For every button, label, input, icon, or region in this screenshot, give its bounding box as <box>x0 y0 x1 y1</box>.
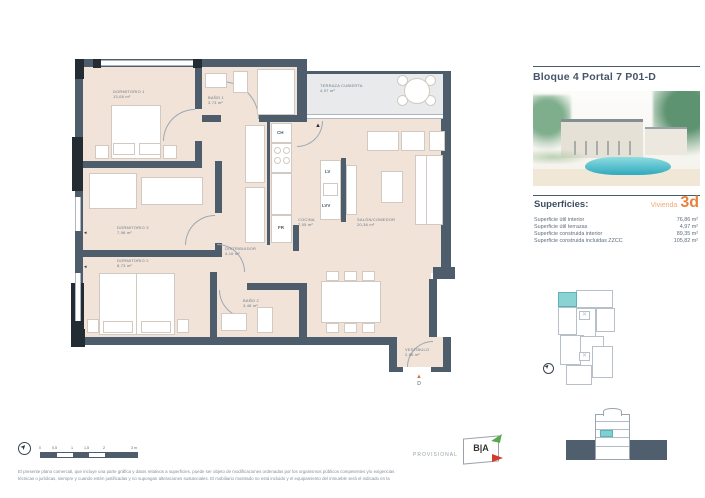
room-label-vestibulo: VESTÍBULO 2,86 m² <box>405 347 429 358</box>
wall-segment <box>431 367 451 372</box>
wall-segment <box>75 161 202 168</box>
section-roof <box>603 408 622 416</box>
wall-segment <box>429 279 437 337</box>
scale-segment <box>105 453 137 457</box>
bed-pillow <box>141 321 171 333</box>
sideboard <box>429 131 445 151</box>
structural-column <box>75 59 84 79</box>
key-plan-block <box>592 346 613 378</box>
stair-core-icon: ✕ <box>579 352 590 361</box>
scale-tick: 1,5 <box>84 446 89 450</box>
scale-tick: 1 <box>71 446 73 450</box>
chair <box>362 323 375 333</box>
building-art <box>645 127 687 155</box>
energy-rating-logo: B|A <box>463 437 499 463</box>
wall-segment <box>299 283 307 337</box>
room-label-dormitorio-2: DORMITORIO 2 8,73 m² <box>117 258 149 269</box>
stair-core-icon: ✕ <box>579 311 590 320</box>
floor-line <box>596 437 629 438</box>
compass-icon: ➤ <box>543 363 554 374</box>
bar-shelf <box>346 165 357 215</box>
highlighted-unit <box>558 292 577 307</box>
island-sink <box>323 183 338 196</box>
vivienda-type-value: 3d <box>680 194 699 211</box>
disclaimer-line: técnicas o jurídicas, siempre y cuando e… <box>18 476 692 483</box>
shower <box>257 69 295 115</box>
wall-segment <box>267 121 270 245</box>
room-area: 7,96 m² <box>117 230 149 235</box>
appliance-label-lv: LV <box>325 169 330 174</box>
chair <box>326 271 339 281</box>
sink <box>221 313 247 331</box>
room-area: 7,05 m² <box>298 222 315 227</box>
room-area: 2,86 m² <box>405 352 429 357</box>
room-area: 13,06 m² <box>113 94 145 99</box>
room-area: 3,73 m² <box>208 100 224 105</box>
window <box>101 60 193 66</box>
entrance-letter: D <box>413 381 425 387</box>
room-label-cocina: COCINA 7,05 m² <box>298 217 315 228</box>
superficie-row: Superficie construida interior 89,35 m² <box>534 231 698 237</box>
superficie-row: Superficie construida incluidas ZZCC 105… <box>534 238 698 244</box>
sideboard <box>367 131 399 151</box>
garden-art <box>533 149 591 165</box>
sink <box>205 73 227 88</box>
room-area: 8,73 m² <box>117 263 149 268</box>
window-marker-icon: ◂ <box>84 231 87 236</box>
window <box>75 273 81 321</box>
chair <box>326 323 339 333</box>
wall-segment <box>202 115 221 122</box>
nightstand <box>177 319 189 333</box>
appliance-label-ch: CH <box>277 130 284 135</box>
burner <box>283 147 290 154</box>
room-area: 4,97 m² <box>320 88 363 93</box>
wall-segment <box>443 337 451 371</box>
room-label-distribuidor: DISTRIBUIDOR 4,16 m² <box>225 246 256 257</box>
superficie-value: 76,86 m² <box>677 217 698 223</box>
floor-plan: ◂ ◂ ▲ <box>55 45 465 395</box>
dining-table <box>321 281 381 323</box>
window-terrace-glazing <box>307 114 443 119</box>
superficie-value: 89,35 m² <box>677 231 698 237</box>
closet <box>245 125 265 183</box>
structural-column <box>71 329 85 347</box>
superficie-value: 4,97 m² <box>680 224 698 230</box>
wall-segment <box>297 67 307 119</box>
room-area: 3,48 m² <box>243 303 259 308</box>
chair <box>344 271 357 281</box>
compass-needle-icon: ➤ <box>544 363 552 371</box>
window <box>75 197 81 231</box>
sofa <box>415 155 443 225</box>
chair <box>344 323 357 333</box>
ground-mass <box>630 440 667 460</box>
room-label-salon: SALÓN/COMEDOR 20,36 m² <box>357 217 395 228</box>
scale-tick: 0,5 <box>52 446 57 450</box>
scale-segment <box>41 453 57 457</box>
provisional-label: PROVISIONAL <box>413 452 458 458</box>
room-area: 4,16 m² <box>225 251 256 256</box>
room-label-bano-2: BAÑO 2 3,48 m² <box>243 298 259 309</box>
terrace-round-table <box>404 78 430 104</box>
north-compass-icon: ➤ <box>18 442 31 455</box>
energy-logo-letters: B|A <box>463 443 499 453</box>
coffee-table <box>381 171 403 203</box>
room-label-dormitorio-3: DORMITORIO 3 7,96 m² <box>117 225 149 236</box>
desk <box>141 177 203 205</box>
toilet <box>233 71 248 93</box>
entrance-arrow-icon: ▲ <box>413 374 425 380</box>
appliance-label-fr: FR <box>278 225 284 230</box>
wall-segment <box>215 161 222 213</box>
scale-tick: 3 m <box>131 446 137 450</box>
structural-column <box>193 59 202 68</box>
ground-mass <box>566 440 595 460</box>
scale-tick: 2 <box>103 446 105 450</box>
key-plan-block <box>566 365 592 385</box>
scale-bar <box>40 452 138 458</box>
wall-segment <box>210 272 217 337</box>
legal-disclaimer: El presente plano comercial, que incluye… <box>18 469 692 483</box>
page-title: Bloque 4 Portal 7 P01-D <box>533 71 656 83</box>
appliance-label-lvv: LVV <box>322 203 330 208</box>
burner <box>283 157 290 164</box>
superficie-row: Superficie útil interior 76,86 m² <box>534 217 698 223</box>
bed-pillow <box>103 321 133 333</box>
window-marker-icon: ◂ <box>84 265 87 270</box>
key-plan-block <box>596 308 615 332</box>
room-label-bano-1: BAÑO 1 3,73 m² <box>208 95 224 106</box>
wall-segment <box>433 267 455 279</box>
wall-segment <box>247 283 299 290</box>
energy-logo-green-arrow-icon <box>491 432 502 443</box>
pool-art <box>585 157 671 175</box>
room-label-terraza: TERRAZA CUBIERTA 4,97 m² <box>320 83 363 94</box>
nightstand <box>87 319 99 333</box>
nightstand <box>95 145 109 159</box>
room-area: 20,36 m² <box>357 222 395 227</box>
divider-line <box>533 66 700 67</box>
floor-line <box>596 421 629 422</box>
superficie-label: Superficie construida incluidas ZZCC <box>534 238 623 244</box>
floor-line <box>596 446 629 447</box>
highlighted-floor <box>600 430 613 437</box>
room-label-dormitorio-1: DORMITORIO 1 13,06 m² <box>113 89 145 100</box>
bed-pillow <box>139 143 161 155</box>
sideboard <box>401 131 425 151</box>
toilet <box>257 307 273 333</box>
wall-segment <box>307 71 443 74</box>
wall-segment <box>443 71 451 117</box>
plan-sheet-page: ◂ ◂ ▲ <box>0 0 705 498</box>
superficie-row: Superficie útil terrazas 4,97 m² <box>534 224 698 230</box>
sofa-seat-line <box>426 156 427 224</box>
closet <box>245 187 265 243</box>
kitchen-counter <box>271 173 292 215</box>
bed-pillow <box>113 143 135 155</box>
wall-segment <box>195 67 202 109</box>
nightstand <box>163 145 177 159</box>
wall-segment <box>389 367 403 372</box>
bed-single <box>89 173 137 209</box>
structural-column <box>72 137 83 191</box>
chair <box>362 271 375 281</box>
superficie-label: Superficie construida interior <box>534 231 602 237</box>
vivienda-label: Vivienda <box>651 202 678 209</box>
scale-tick: 0 <box>39 446 41 450</box>
compass-needle-icon: ➤ <box>19 443 28 452</box>
superficie-value: 105,82 m² <box>674 238 698 244</box>
structural-column <box>93 59 101 68</box>
superficie-label: Superficie útil interior <box>534 217 584 223</box>
bed-split-line <box>136 274 137 334</box>
key-plan-block <box>576 290 613 308</box>
burner <box>274 147 281 154</box>
wall-segment <box>195 141 202 168</box>
vivienda-type: Vivienda3d <box>533 194 699 212</box>
wall-segment <box>293 225 299 251</box>
superficie-label: Superficie útil terrazas <box>534 224 587 230</box>
burner <box>274 157 281 164</box>
scale-segment <box>73 453 89 457</box>
wall-segment <box>75 337 397 345</box>
disclaimer-line: El presente plano comercial, que incluye… <box>18 469 692 476</box>
building-render-image <box>533 91 700 186</box>
wall-segment <box>75 250 222 257</box>
